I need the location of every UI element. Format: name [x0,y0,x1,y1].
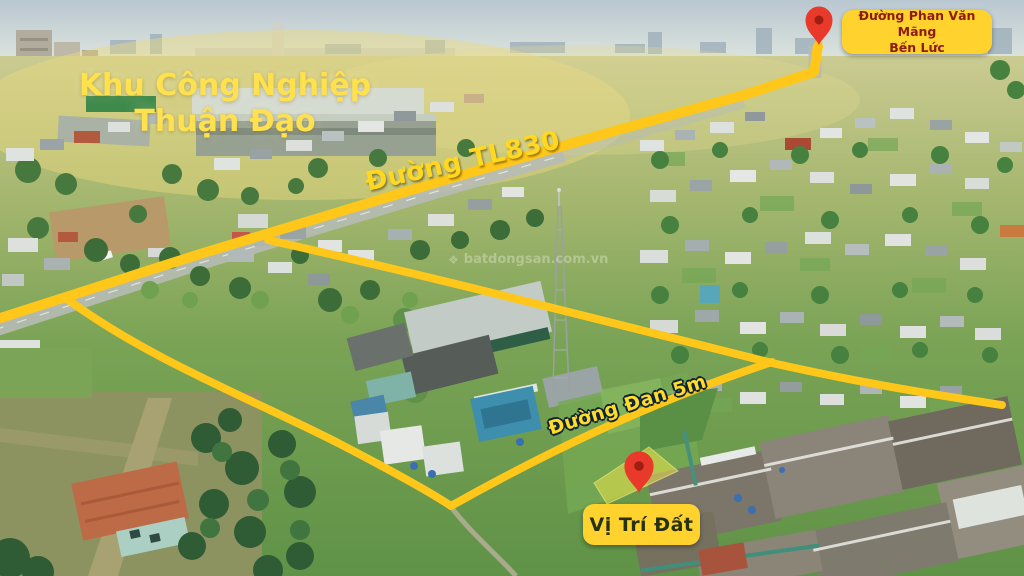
road-phan-van-mang-line2: Bến Lức [889,40,945,56]
industrial-zone-line1: Khu Công Nghiệp [79,68,371,103]
watermark-logo-icon: ❖ [448,253,459,267]
watermark-text: batdongsan.com.vn [464,252,609,267]
road-phan-van-mang-line1: Đường Phan Văn Mãng [846,8,988,40]
road-phan-van-mang-badge: Đường Phan Văn Mãng Bến Lức [842,10,992,54]
aerial-real-estate-ad: Khu Công Nghiệp Thuận Đạo Đường TL830 Đư… [0,0,1024,576]
industrial-zone-label: Khu Công Nghiệp Thuận Đạo [60,68,390,140]
watermark: ❖ batdongsan.com.vn [448,252,608,267]
plot-location-badge: Vị Trí Đất [583,504,700,545]
industrial-zone-line2: Thuận Đạo [134,104,315,139]
